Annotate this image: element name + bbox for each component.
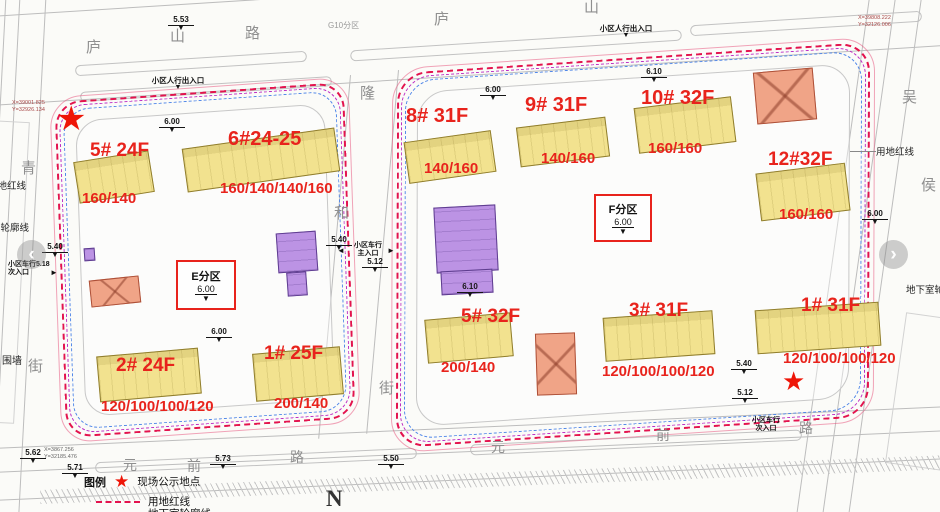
elevation-triangle-icon: ▼	[202, 295, 210, 302]
main-vehicle-entrance-label: 小区车行主入口	[346, 242, 390, 259]
parcel-line-label-right: 用地红线	[876, 144, 914, 158]
road-island	[75, 51, 307, 77]
road-label-yuanqian: 路	[290, 450, 304, 465]
elevation-marker: 6.10▼	[457, 283, 483, 299]
site-plan-image: 庐 山 路 庐 山 隆 和 街 青 街 吴 侯 元 前 路 元 前 路 G10分…	[0, 0, 940, 512]
building-units-label: 140/160	[424, 161, 478, 177]
leader-line	[850, 151, 876, 152]
wall-label: 围墙	[2, 352, 22, 367]
elevation-triangle-icon: ▼	[210, 465, 236, 471]
elevation-triangle-icon: ▼	[206, 338, 232, 344]
road-label-yuanqian: 路	[799, 421, 813, 436]
elevation-marker: 5.12▼	[732, 389, 758, 405]
elevation-marker: 5.40▼	[42, 243, 68, 259]
zone-box-f: F分区 6.00 ▼	[594, 194, 652, 242]
road-island	[95, 448, 417, 474]
elevation-triangle-icon: ▼	[619, 228, 627, 235]
elevation-triangle-icon: ▼	[862, 220, 888, 226]
building-units-label: 200/140	[441, 360, 495, 376]
building-name-label: 1# 31F	[801, 296, 860, 316]
road-label-left-street: 青	[21, 161, 36, 177]
building-units-label: 120/100/100/120	[602, 364, 715, 380]
public-building-footprint	[276, 231, 319, 274]
elevation-marker: 5.12▼	[362, 258, 388, 274]
building-name-label: 1# 25F	[264, 344, 323, 364]
elevation-marker: 5.50▼	[378, 455, 404, 471]
elevation-triangle-icon: ▼	[731, 370, 757, 376]
basement-line-label-left: 地下室轮廓线	[0, 220, 29, 234]
service-building-footprint	[89, 275, 142, 307]
building-name-label: 2# 24F	[116, 356, 175, 376]
entrance-triangle-icon: ▼	[592, 33, 660, 39]
road-label-yuanqian: 前	[656, 428, 670, 443]
elevation-marker: 5.62▼	[20, 449, 46, 465]
entrance-arrow-icon: ◄	[337, 246, 345, 255]
road-label-right-street: 吴	[902, 90, 917, 106]
legend-item-label: 地下室轮廓线	[148, 506, 211, 512]
site-notice-star-icon: ★	[56, 102, 86, 136]
elevation-marker: 6.10▼	[641, 68, 667, 84]
building-name-label: 9# 31F	[525, 95, 587, 116]
building-name-label: 3# 31F	[629, 301, 688, 321]
elevation-marker: 5.73▼	[210, 455, 236, 471]
entrance-triangle-icon: ▼	[144, 85, 212, 91]
legend-row-basement-line: 地下室轮廓线	[96, 506, 211, 512]
elevation-triangle-icon: ▼	[641, 78, 667, 84]
public-building-footprint	[433, 204, 498, 273]
building-name-label: 10# 32F	[641, 88, 714, 109]
zone-box-e: E分区 6.00 ▼	[176, 260, 236, 310]
road-label-right-street: 侯	[921, 178, 936, 194]
building-units-label: 160/140/140/160	[220, 181, 333, 197]
building-units-label: 200/140	[274, 396, 328, 412]
service-building-footprint	[535, 332, 577, 395]
entrance-arrow-icon: ►	[387, 246, 395, 255]
parcel-line-label-left: 用地红线	[0, 178, 26, 192]
road-label-left-street: 街	[28, 359, 43, 375]
building-name-label: 5# 24F	[90, 141, 149, 161]
service-building-footprint	[753, 67, 817, 124]
road-edge-line	[0, 0, 940, 17]
road-label-yuanqian: 前	[187, 459, 201, 474]
legend-item-label: 现场公示地点	[137, 474, 200, 489]
pedestrian-entrance-label: 小区人行出入口▼	[144, 76, 212, 91]
road-label-lushan: 庐	[434, 12, 449, 28]
road-label-longhe: 和	[334, 206, 349, 222]
pedestrian-entrance-label: 小区人行出入口▼	[592, 24, 660, 39]
elevation-marker: 6.00▼	[862, 210, 888, 226]
prev-image-button[interactable]: ‹	[17, 240, 46, 269]
public-building-footprint	[84, 248, 96, 262]
survey-coordinate-label: X=3867.256Y=32185.476	[44, 447, 77, 461]
elevation-marker: 6.00▼	[159, 118, 185, 134]
survey-coordinate-label: X=39001.825Y=32926.134	[12, 100, 45, 114]
red-dash-sample	[96, 501, 140, 503]
next-image-button[interactable]: ›	[879, 240, 908, 269]
building-name-label: 5# 32F	[461, 307, 520, 327]
survey-coordinate-label: X=39808.222Y=32126.006	[858, 15, 891, 29]
star-icon: ★	[114, 473, 129, 490]
road-label-lushan: 路	[245, 26, 260, 42]
road-label-yuanqian: 元	[123, 458, 137, 473]
elevation-triangle-icon: ▼	[168, 26, 194, 32]
elevation-marker: 5.40▼	[731, 360, 757, 376]
building-name-label: 12#32F	[768, 150, 832, 170]
public-building-footprint	[286, 271, 308, 296]
north-indicator: N	[326, 486, 343, 512]
building-units-label: 120/100/100/120	[783, 351, 896, 367]
elevation-triangle-icon: ▼	[362, 268, 388, 274]
elevation-triangle-icon: ▼	[159, 128, 185, 134]
building-units-label: 160/160	[779, 207, 833, 223]
building-name-label: 6#24-25	[228, 129, 301, 150]
zone-name: F分区	[609, 201, 638, 217]
road-label-yuanqian: 元	[491, 440, 505, 455]
legend-row-site-notice: 图例 ★ 现场公示地点	[84, 473, 200, 490]
site-notice-star-icon: ★	[782, 368, 805, 394]
elevation-triangle-icon: ▼	[378, 465, 404, 471]
basement-line-label-right: 地下室轮廓线	[906, 282, 940, 296]
road-label-lushan: 庐	[86, 40, 101, 56]
secondary-vehicle-entrance-label: 小区车行次入口	[744, 417, 788, 434]
road-label-longhe: 隆	[360, 86, 375, 102]
elevation-triangle-icon: ▼	[457, 293, 483, 299]
elevation-triangle-icon: ▼	[732, 399, 758, 405]
building-units-label: 160/140	[82, 191, 136, 207]
road-label-longhe: 街	[379, 381, 394, 397]
subzone-label: G10分区	[328, 20, 359, 31]
zone-name: E分区	[191, 268, 220, 284]
building-units-label: 160/160	[648, 141, 702, 157]
building-units-label: 140/160	[541, 151, 595, 167]
elevation-marker: 6.00▼	[480, 86, 506, 102]
elevation-marker: 6.00▼	[206, 328, 232, 344]
chevron-right-icon: ›	[890, 244, 896, 266]
legend-title: 图例	[84, 474, 106, 490]
building-name-label: 8# 31F	[406, 106, 468, 127]
building-units-label: 120/100/100/120	[101, 399, 214, 415]
elevation-triangle-icon: ▼	[480, 96, 506, 102]
chevron-left-icon: ‹	[28, 244, 34, 266]
road-label-lushan: 山	[584, 0, 599, 16]
entrance-arrow-icon: ►	[50, 268, 58, 277]
elevation-marker: 5.53▼	[168, 16, 194, 32]
adjacent-parcel-outline	[885, 312, 940, 479]
elevation-triangle-icon: ▼	[20, 459, 46, 465]
